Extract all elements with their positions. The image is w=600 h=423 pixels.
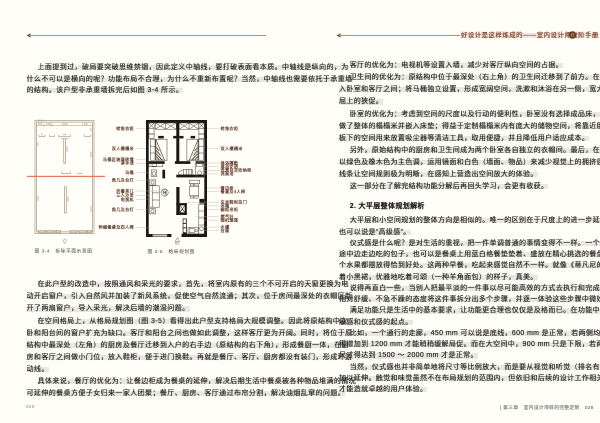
svg-text:马桶: 马桶 xyxy=(125,169,134,175)
svg-text:餐桌及4人椅: 餐桌及4人椅 xyxy=(221,188,246,194)
svg-text:2600: 2600 xyxy=(62,122,68,126)
svg-text:1500: 1500 xyxy=(46,122,52,126)
svg-text:电视机: 电视机 xyxy=(121,196,134,202)
svg-text:双人榻榻米: 双人榻榻米 xyxy=(112,145,134,151)
svg-text:角几及台灯: 角几及台灯 xyxy=(112,206,134,212)
svg-text:伸缩餐桌及四人椅: 伸缩餐桌及四人椅 xyxy=(98,224,134,230)
svg-text:5740: 5740 xyxy=(38,119,44,123)
svg-text:2400: 2400 xyxy=(66,196,70,202)
svg-text:橱柜吊柜: 橱柜吊柜 xyxy=(221,206,239,212)
svg-text:洗面池: 洗面池 xyxy=(221,170,234,176)
svg-text:图 3-5 格局规划图: 图 3-5 格局规划图 xyxy=(148,248,195,255)
svg-text:角几及台灯: 角几及台灯 xyxy=(112,177,134,183)
svg-text:A3: A3 xyxy=(175,242,179,246)
svg-text:双人榻榻米: 双人榻榻米 xyxy=(221,145,243,151)
svg-text:转角衣柜: 转角衣柜 xyxy=(221,125,239,131)
svg-text:台面: 台面 xyxy=(221,227,230,233)
svg-text:转角衣柜: 转角衣柜 xyxy=(116,125,134,131)
svg-text:净手池: 净手池 xyxy=(121,160,134,166)
svg-text:图 3-4 拆除平面示意图: 图 3-4 拆除平面示意图 xyxy=(35,247,93,254)
svg-text:烟机烟道: 烟机烟道 xyxy=(221,216,239,222)
svg-text:1400: 1400 xyxy=(82,122,88,126)
